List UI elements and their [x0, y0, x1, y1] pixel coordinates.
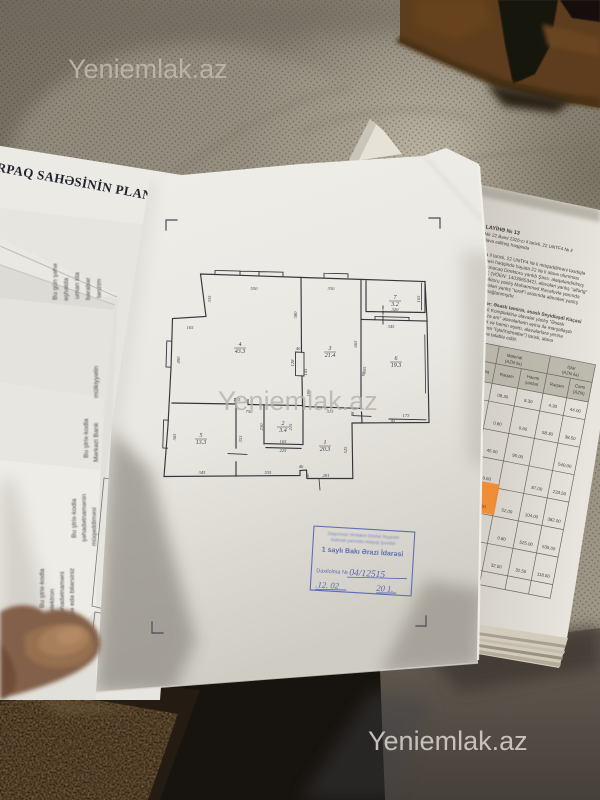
- svg-text:müqəddiməsi: müqəddiməsi: [91, 507, 98, 546]
- svg-text:04/12515: 04/12515: [349, 568, 386, 580]
- svg-text:46: 46: [299, 464, 304, 469]
- svg-text:tənzim: tənzim: [96, 279, 103, 298]
- svg-text:215: 215: [288, 423, 293, 431]
- svg-text:mülkiyyətin: mülkiyyətin: [93, 365, 100, 398]
- svg-text:3: 3: [328, 346, 332, 352]
- svg-text:5: 5: [200, 433, 203, 439]
- svg-text:535: 535: [265, 470, 273, 475]
- svg-text:335: 335: [207, 295, 212, 303]
- svg-text:525: 525: [343, 446, 348, 454]
- svg-text:13.3: 13.3: [196, 440, 207, 446]
- svg-text:Bu ştrix-kodla: Bu ştrix-kodla: [71, 498, 78, 538]
- svg-text:665: 665: [353, 340, 358, 348]
- svg-text:230: 230: [259, 423, 264, 431]
- svg-text:40: 40: [296, 346, 301, 351]
- svg-text:1: 1: [324, 440, 327, 446]
- svg-text:21.4: 21.4: [325, 352, 336, 359]
- svg-text:50: 50: [305, 473, 310, 478]
- svg-text:173: 173: [403, 413, 411, 418]
- svg-text:Yeniemlak.az: Yeniemlak.az: [368, 726, 528, 756]
- svg-text:128: 128: [290, 359, 295, 367]
- svg-text:165: 165: [187, 325, 195, 330]
- svg-text:bərabər: bərabər: [85, 277, 92, 300]
- svg-text:3.4: 3.4: [278, 427, 287, 434]
- svg-text:19.3: 19.3: [391, 363, 402, 369]
- svg-text:Bu ştrix-kodla: Bu ştrix-kodla: [83, 418, 90, 458]
- svg-text:Bu gün şəhə: Bu gün şəhə: [52, 263, 59, 300]
- svg-text:345: 345: [199, 470, 207, 475]
- svg-text:353: 353: [238, 435, 243, 443]
- svg-text:490: 490: [176, 356, 181, 364]
- svg-text:Yeniemlak.az: Yeniemlak.az: [68, 54, 228, 84]
- svg-text:45: 45: [391, 418, 396, 423]
- svg-text:165: 165: [416, 295, 421, 303]
- svg-text:20 1.: 20 1.: [376, 583, 394, 594]
- svg-text:345: 345: [388, 324, 396, 329]
- svg-text:Bu ştrix-kodla: Bu ştrix-kodla: [39, 568, 46, 608]
- svg-text:225: 225: [280, 448, 288, 453]
- svg-text:6: 6: [395, 356, 398, 362]
- svg-text:4: 4: [239, 341, 242, 348]
- svg-text:165: 165: [280, 439, 288, 444]
- svg-text:uman ida: uman ida: [74, 272, 81, 299]
- svg-text:550: 550: [251, 286, 259, 291]
- svg-text:141: 141: [303, 369, 308, 376]
- svg-text:320: 320: [392, 307, 400, 312]
- svg-text:Yeniemlak.az: Yeniemlak.az: [218, 386, 378, 416]
- svg-text:Mərkəzi Bank: Mərkəzi Bank: [93, 422, 100, 462]
- svg-text:43.3: 43.3: [235, 348, 246, 355]
- svg-text:281: 281: [323, 473, 330, 478]
- svg-text:90: 90: [361, 371, 366, 376]
- svg-text:elektron: elektron: [49, 588, 56, 612]
- svg-text:2: 2: [282, 421, 285, 427]
- svg-text:əşhatda: əşhatda: [63, 277, 70, 301]
- svg-text:380: 380: [293, 311, 298, 319]
- svg-text:365: 365: [172, 433, 177, 441]
- svg-text:şəhadətnamənin: şəhadətnamənin: [81, 494, 88, 542]
- svg-text:330: 330: [328, 286, 336, 291]
- svg-text:20.3: 20.3: [320, 447, 331, 453]
